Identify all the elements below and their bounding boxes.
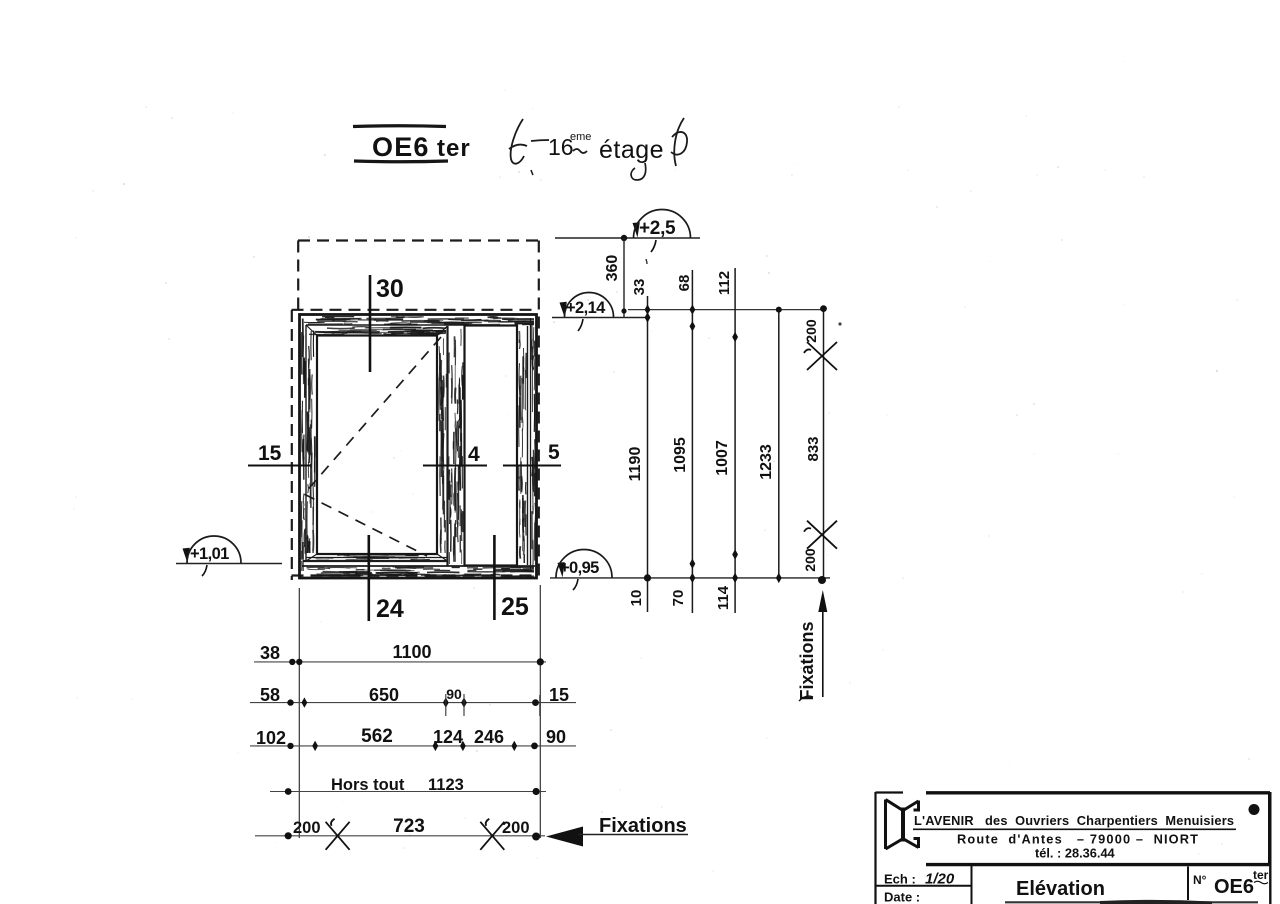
svg-text:étage: étage <box>599 136 664 164</box>
svg-text:33: 33 <box>631 279 648 296</box>
svg-text:5: 5 <box>548 441 560 464</box>
svg-text:58: 58 <box>260 685 280 705</box>
svg-text:+1,01: +1,01 <box>190 545 229 563</box>
svg-text:200: 200 <box>803 319 819 343</box>
svg-text:+2,5: +2,5 <box>639 218 676 239</box>
svg-text:1100: 1100 <box>392 642 431 662</box>
svg-text:+0,95: +0,95 <box>560 559 599 577</box>
svg-text:124: 124 <box>433 727 463 747</box>
svg-text:ter: ter <box>437 135 471 162</box>
svg-text:1233: 1233 <box>758 444 775 480</box>
svg-text:Route d'Antes – 79000 – NI: Route d'Antes – 79000 – NIORT <box>957 832 1198 847</box>
svg-text:833: 833 <box>805 436 822 461</box>
svg-text:200: 200 <box>802 548 818 572</box>
svg-text:25: 25 <box>501 593 529 621</box>
svg-text:200: 200 <box>293 819 321 837</box>
svg-text:70: 70 <box>670 590 687 607</box>
svg-text:tél. : 28.36.44: tél. : 28.36.44 <box>1035 846 1116 861</box>
svg-text:90: 90 <box>446 686 462 702</box>
svg-text:1007: 1007 <box>714 440 731 476</box>
svg-text:10: 10 <box>628 590 645 607</box>
svg-text:112: 112 <box>716 271 733 295</box>
svg-text:OE6: OE6 <box>1214 876 1254 898</box>
svg-text:eme: eme <box>570 131 591 143</box>
svg-text:+2,14: +2,14 <box>566 299 606 317</box>
svg-text:1095: 1095 <box>672 437 689 473</box>
svg-text:Fixations: Fixations <box>599 815 687 837</box>
svg-text:1190: 1190 <box>627 447 644 482</box>
svg-text:15: 15 <box>549 685 569 705</box>
svg-text:650: 650 <box>369 685 399 705</box>
svg-text:Elévation: Elévation <box>1016 878 1105 900</box>
svg-text:200: 200 <box>502 819 530 837</box>
svg-text:Date :: Date : <box>884 890 920 904</box>
svg-text:246: 246 <box>474 727 504 747</box>
svg-text:OE6: OE6 <box>372 132 430 162</box>
svg-text:Hors tout: Hors tout <box>331 776 405 794</box>
svg-text:4: 4 <box>468 443 480 466</box>
svg-text:114: 114 <box>715 585 732 610</box>
svg-text:N°: N° <box>1193 873 1207 887</box>
svg-text:Ech :: Ech : <box>884 872 916 887</box>
svg-text:562: 562 <box>361 726 393 747</box>
svg-text:30: 30 <box>376 275 404 303</box>
svg-text:90: 90 <box>546 727 566 747</box>
svg-text:1/20: 1/20 <box>925 871 955 888</box>
svg-text:15: 15 <box>258 442 282 465</box>
svg-text:L'AVENIR des Ouvriers Char: L'AVENIR des Ouvriers Charpentiers Menui… <box>914 813 1234 828</box>
svg-text:68: 68 <box>676 275 693 292</box>
svg-text:102: 102 <box>256 728 286 748</box>
svg-text:ter: ter <box>1253 868 1269 882</box>
svg-text:Fixations: Fixations <box>797 621 817 700</box>
svg-text:360: 360 <box>604 255 621 282</box>
svg-text:24: 24 <box>376 595 404 623</box>
svg-text:1123: 1123 <box>428 776 464 794</box>
svg-text:38: 38 <box>260 643 280 663</box>
svg-text:723: 723 <box>393 816 425 837</box>
